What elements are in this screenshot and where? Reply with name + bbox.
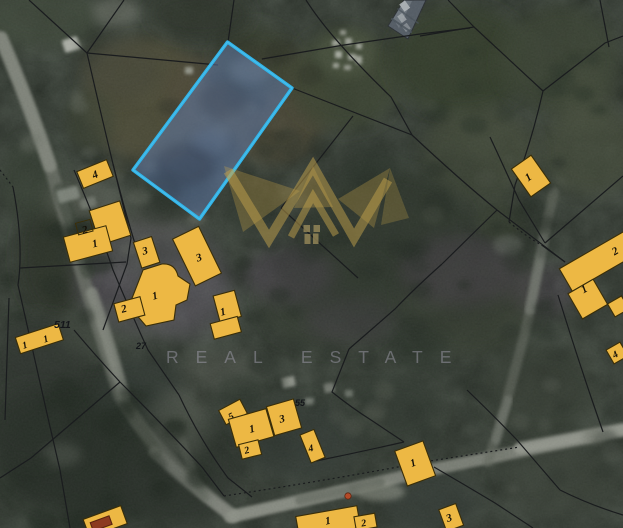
svg-text:511: 511 — [54, 319, 71, 331]
svg-text:REAL ESTATE: REAL ESTATE — [166, 347, 468, 367]
svg-text:27: 27 — [135, 341, 147, 351]
svg-text:55: 55 — [295, 398, 306, 408]
